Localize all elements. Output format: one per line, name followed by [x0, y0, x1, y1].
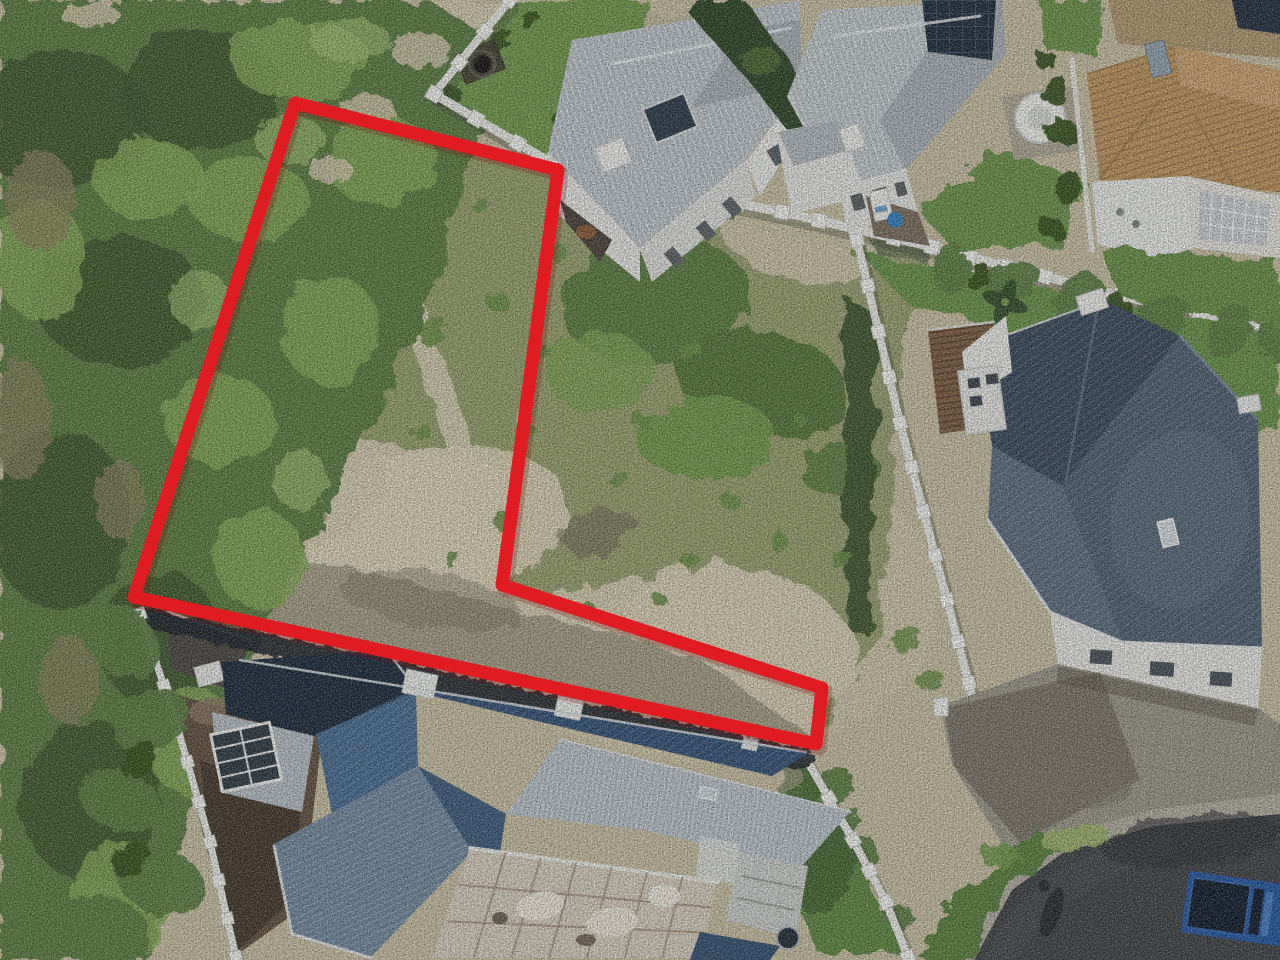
scene-layer: [0, 0, 1280, 960]
grain-light: [0, 0, 1280, 960]
aerial-photo-page: [0, 0, 1280, 960]
aerial-photo-canvas: [0, 0, 1280, 960]
